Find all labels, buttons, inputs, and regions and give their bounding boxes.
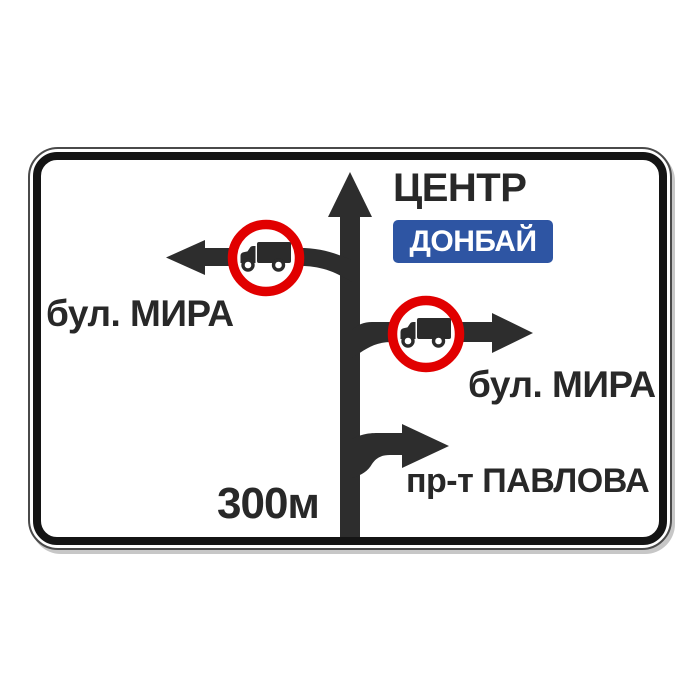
straight-arrow xyxy=(328,172,372,538)
destination-badge: ДОНБАЙ xyxy=(393,220,553,263)
destination-left-label: бул. МИРА xyxy=(46,295,234,334)
destination-straight-label: ЦЕНТР xyxy=(393,167,526,209)
distance-label: 300м xyxy=(217,481,319,527)
truck-prohibition-icon xyxy=(233,225,300,292)
truck-prohibition-icon xyxy=(393,301,460,368)
destination-right-label: бул. МИРА xyxy=(468,366,656,405)
badge-label: ДОНБАЙ xyxy=(409,225,536,259)
junction-diagram xyxy=(0,0,700,700)
destination-slip-road-label: пр-т ПАВЛОВА xyxy=(406,464,649,500)
